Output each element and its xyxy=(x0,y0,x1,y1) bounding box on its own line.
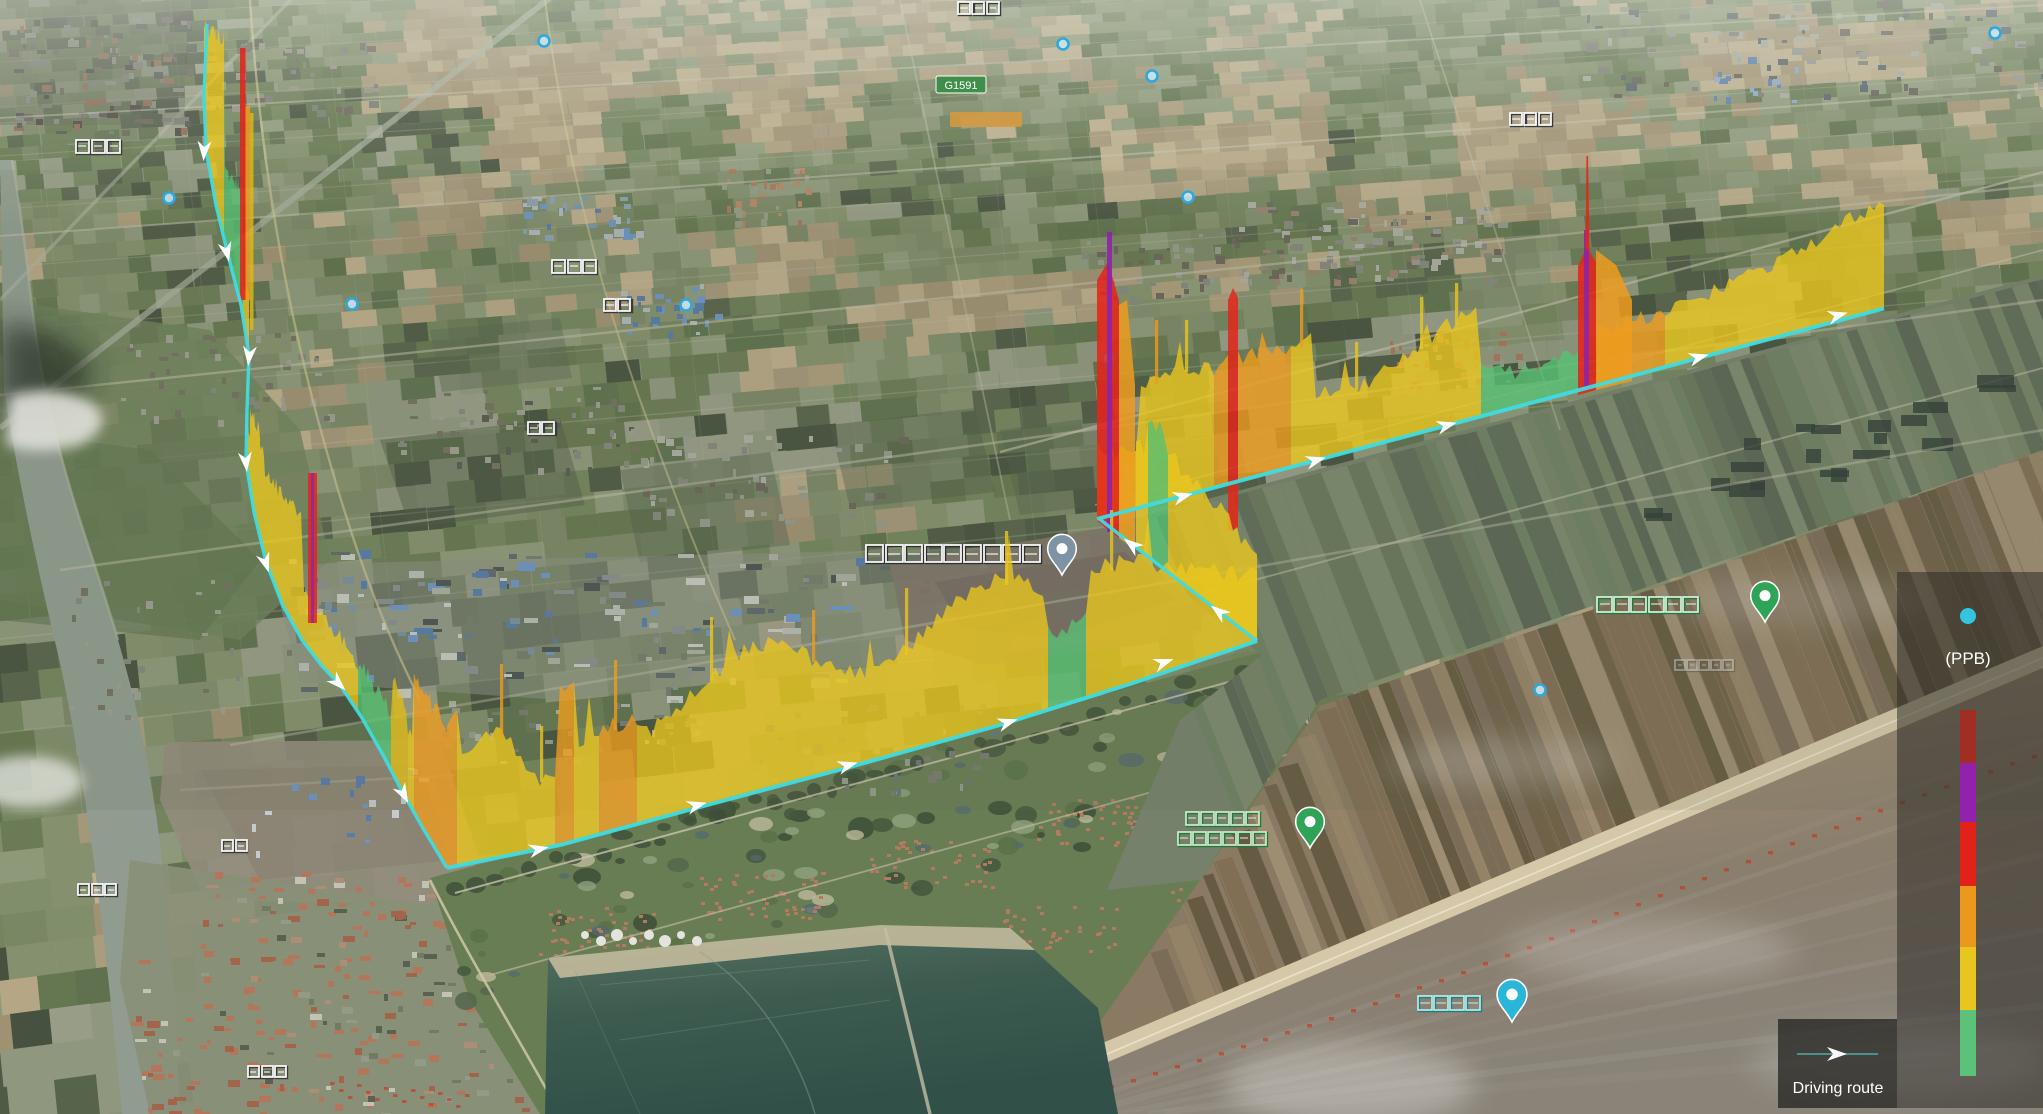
svg-text:G1591: G1591 xyxy=(944,80,977,92)
svg-text:(PPB): (PPB) xyxy=(1945,649,1990,668)
svg-text:Driving route: Driving route xyxy=(1793,1080,1884,1097)
